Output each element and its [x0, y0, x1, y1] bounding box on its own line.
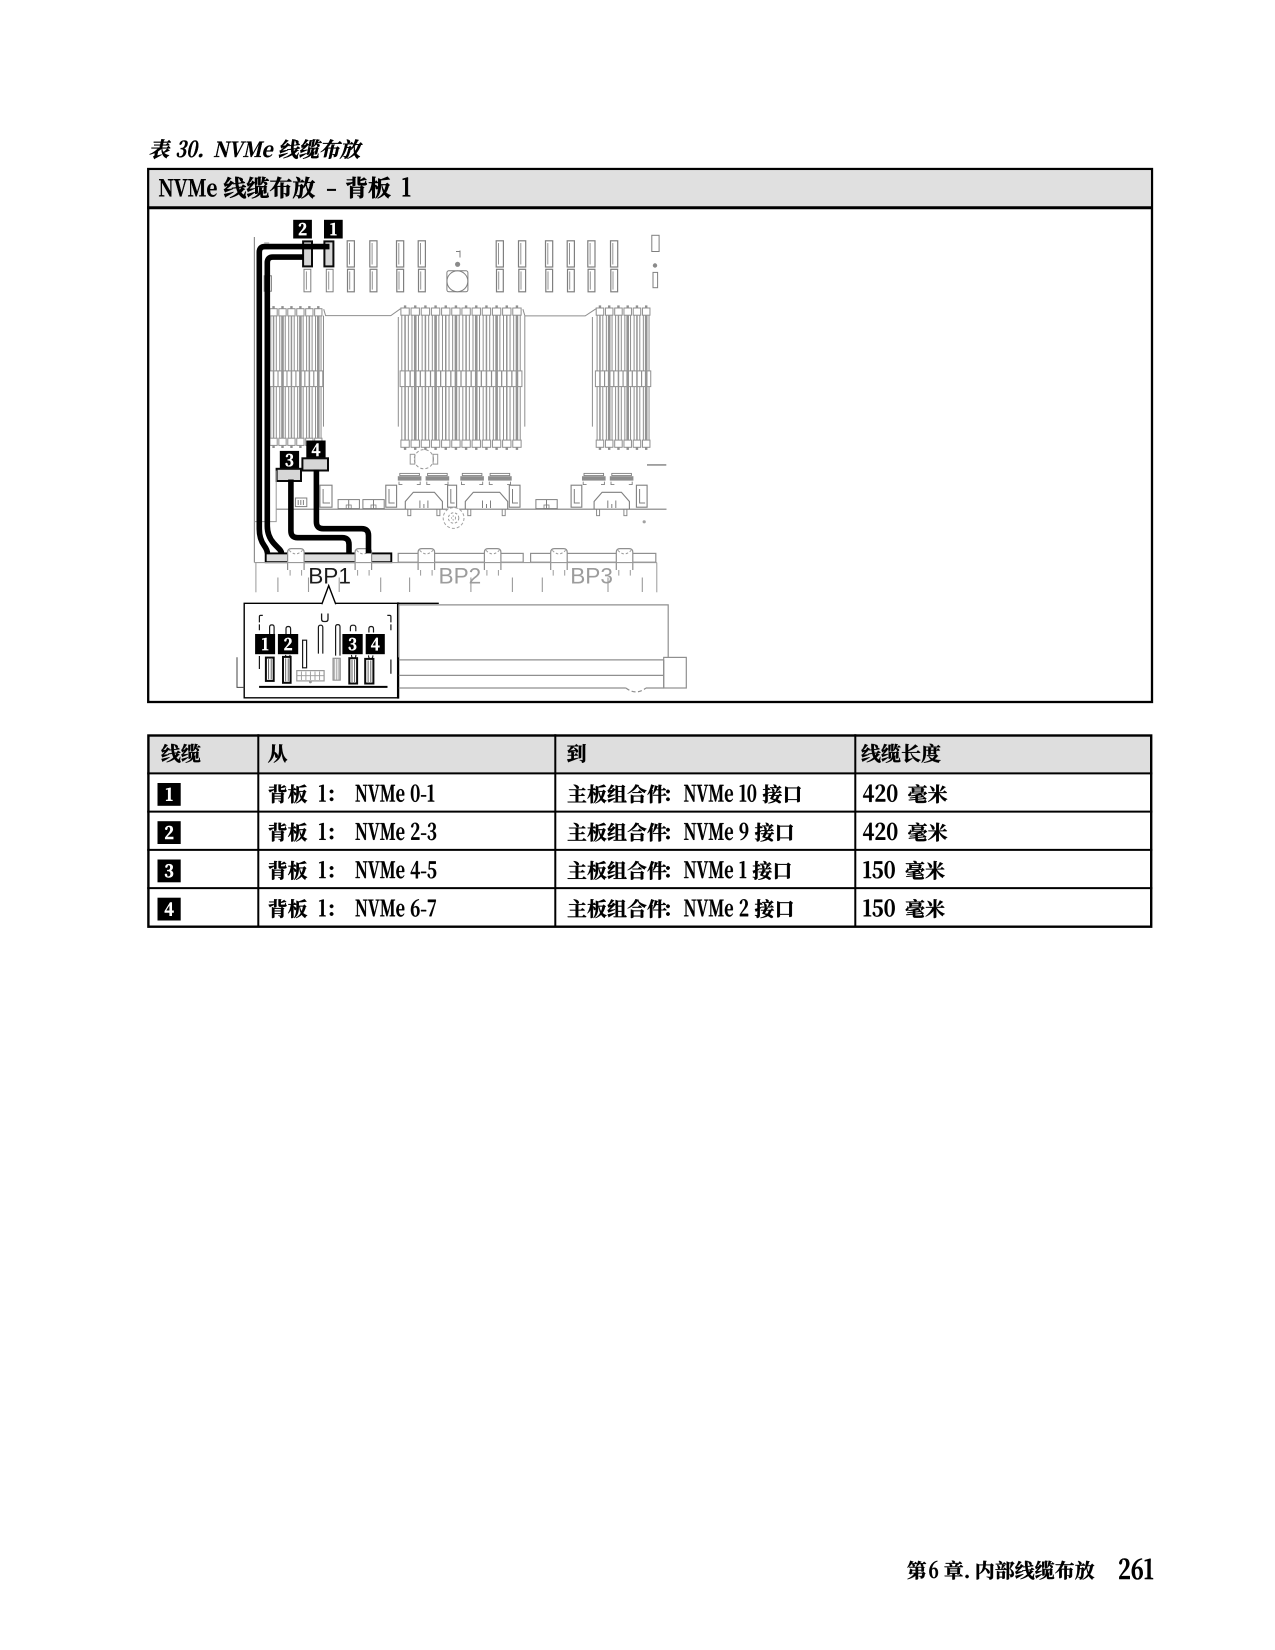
- svg-text:BP3: BP3: [570, 563, 613, 588]
- svg-text:BP1: BP1: [308, 563, 351, 588]
- svg-text:BP2: BP2: [439, 563, 482, 588]
